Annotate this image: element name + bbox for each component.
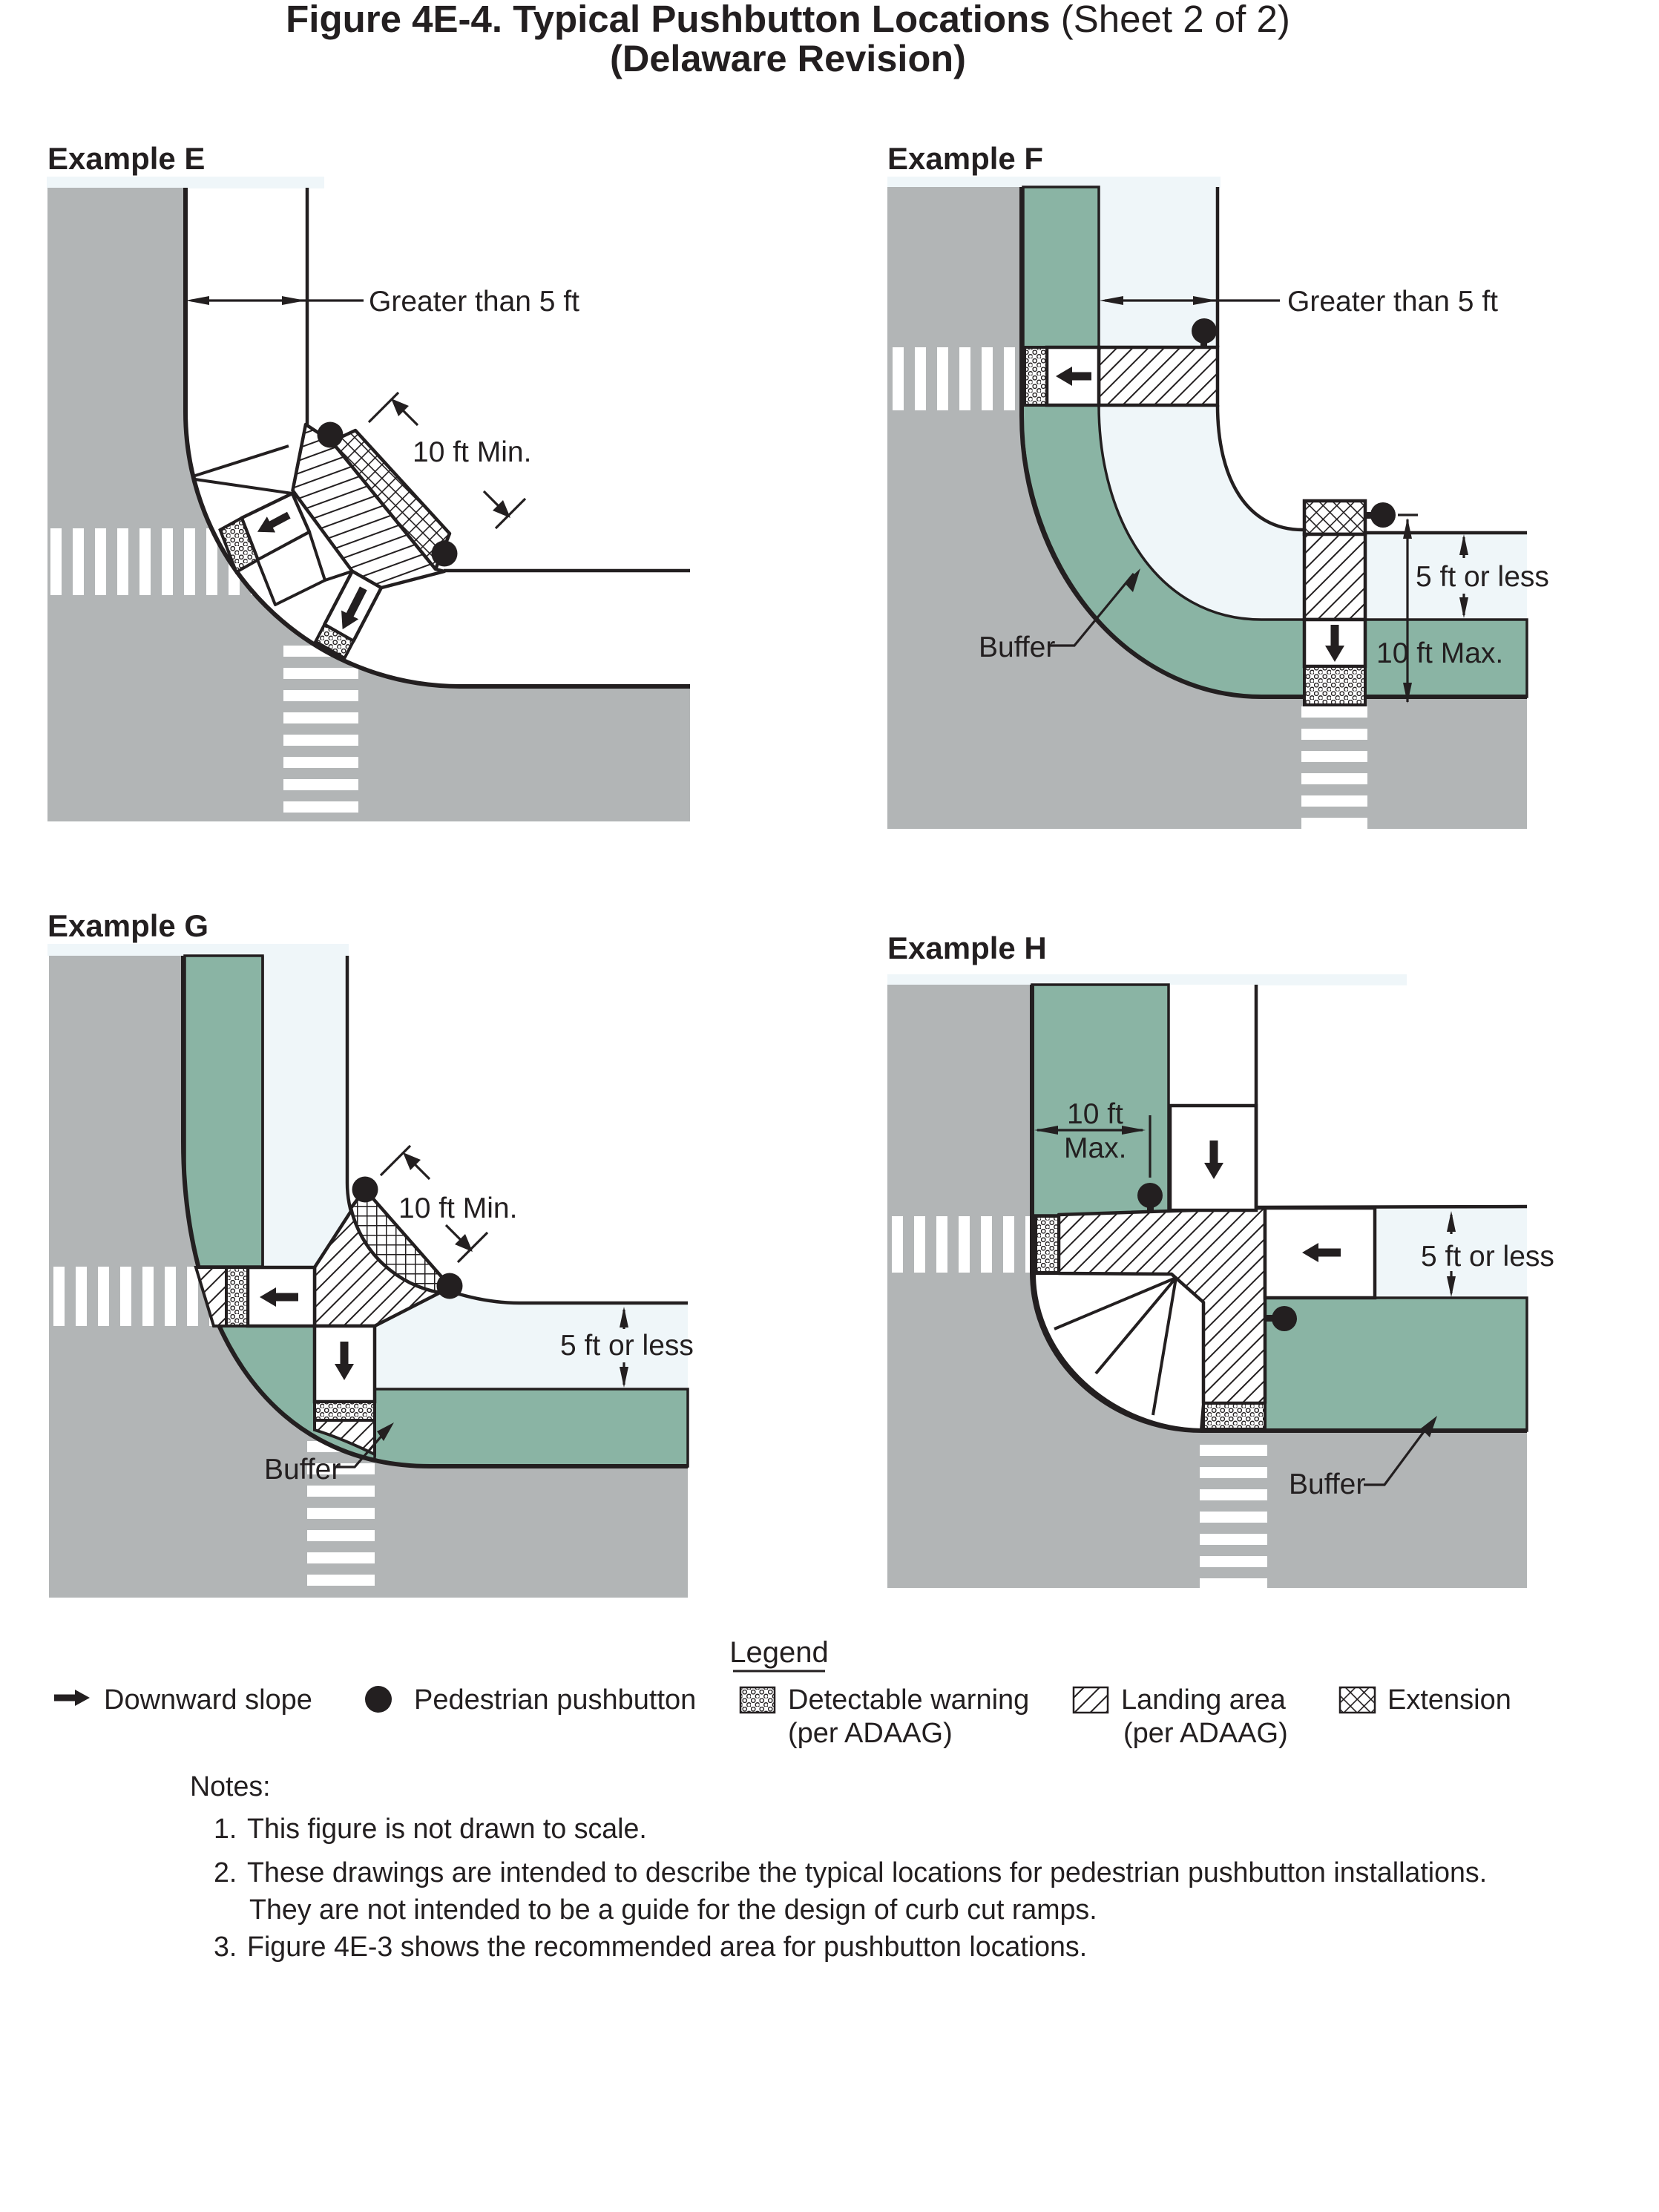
svg-text:Example H: Example H	[887, 931, 1047, 965]
svg-text:Extension: Extension	[1387, 1684, 1511, 1716]
svg-text:5 ft or less: 5 ft or less	[1416, 561, 1549, 593]
svg-text:Figure 4E-3 shows the recommen: Figure 4E-3 shows the recommended area f…	[247, 1931, 1087, 1962]
svg-text:3.: 3.	[214, 1931, 237, 1962]
svg-text:Example G: Example G	[47, 908, 208, 943]
svg-text:These drawings are intended to: These drawings are intended to describe …	[247, 1857, 1487, 1888]
svg-text:Greater than 5 ft: Greater than 5 ft	[369, 286, 579, 318]
svg-text:Pedestrian pushbutton: Pedestrian pushbutton	[414, 1684, 696, 1716]
svg-text:10 ft Min.: 10 ft Min.	[398, 1192, 517, 1224]
svg-text:5 ft or less: 5 ft or less	[1421, 1241, 1554, 1273]
svg-text:2.: 2.	[214, 1857, 237, 1888]
svg-text:Buffer: Buffer	[264, 1454, 341, 1486]
svg-text:Legend: Legend	[729, 1636, 828, 1669]
svg-text:10 ft Max.: 10 ft Max.	[1376, 637, 1503, 669]
svg-text:Downward slope: Downward slope	[104, 1684, 312, 1716]
svg-text:Example F: Example F	[887, 141, 1043, 176]
svg-text:This figure is not drawn to sc: This figure is not drawn to scale.	[247, 1813, 647, 1844]
svg-text:Greater than 5 ft: Greater than 5 ft	[1287, 286, 1498, 318]
svg-text:(per ADAAG): (per ADAAG)	[1123, 1718, 1288, 1749]
svg-text:5 ft or less: 5 ft or less	[560, 1330, 694, 1362]
svg-text:Buffer: Buffer	[979, 631, 1055, 663]
svg-text:Detectable warning: Detectable warning	[788, 1684, 1029, 1716]
svg-text:Landing area: Landing area	[1121, 1684, 1287, 1716]
svg-text:Example E: Example E	[47, 141, 205, 176]
svg-text:10 ft Min.: 10 ft Min.	[413, 436, 531, 468]
svg-text:Figure 4E-4. Typical Pushbutt: Figure 4E-4. Typical Pushbutton Location…	[286, 0, 1290, 40]
svg-text:(per ADAAG): (per ADAAG)	[788, 1718, 953, 1749]
svg-text:Buffer: Buffer	[1289, 1468, 1365, 1500]
svg-text:Notes:: Notes:	[190, 1770, 271, 1802]
svg-text:10 ft: 10 ft	[1067, 1098, 1123, 1130]
svg-text:Max.: Max.	[1064, 1132, 1127, 1164]
svg-text:1.: 1.	[214, 1813, 237, 1844]
svg-text:(Delaware Revision): (Delaware Revision)	[610, 37, 966, 79]
svg-text:They are not intended to be a: They are not intended to be a guide for …	[249, 1894, 1097, 1925]
